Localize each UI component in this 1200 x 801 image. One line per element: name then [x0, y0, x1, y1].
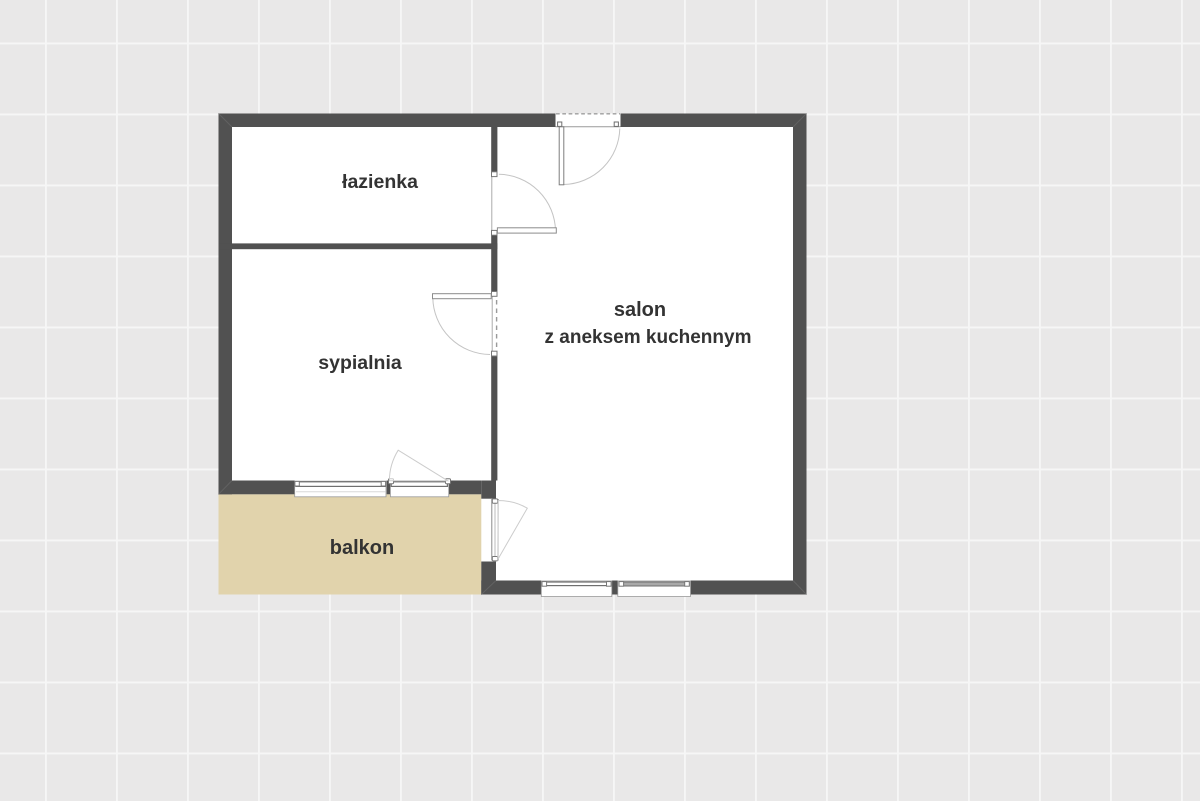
svg-text:salon: salon [614, 299, 666, 321]
svg-text:z aneksem kuchennym: z aneksem kuchennym [545, 327, 752, 348]
svg-text:łazienka: łazienka [342, 171, 418, 193]
svg-text:sypialnia: sypialnia [318, 352, 402, 374]
svg-text:balkon: balkon [330, 537, 394, 559]
